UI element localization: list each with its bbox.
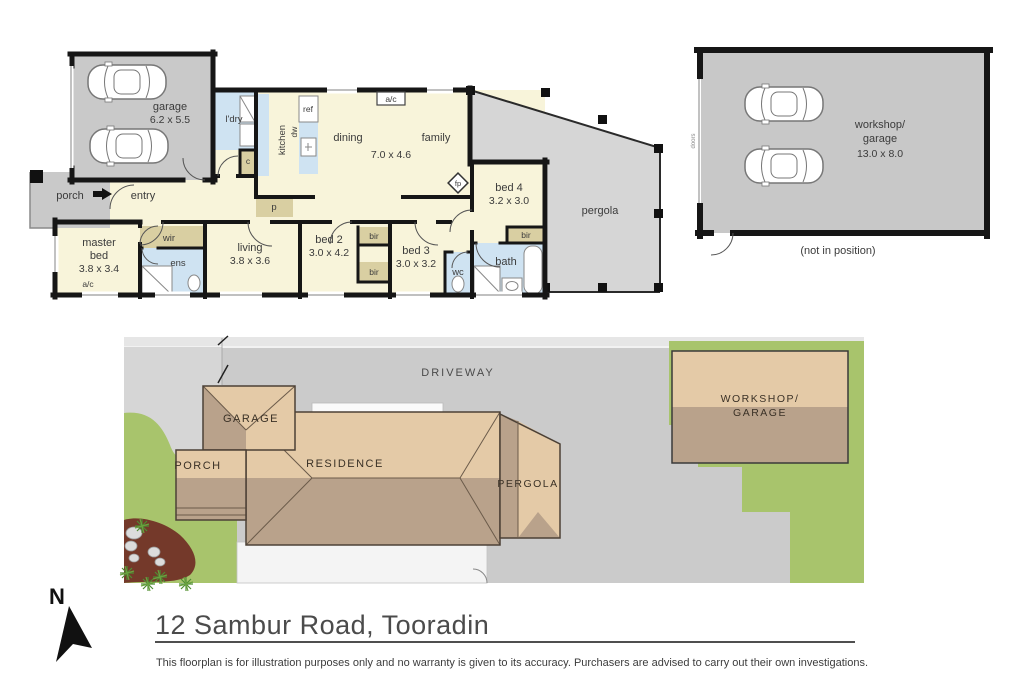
bed2-dims: 3.0 x 4.2: [309, 247, 349, 259]
siteplan-drawing: DRIVEWAY GARAGE PORCH RESIDENCE PERGOLA …: [0, 330, 1024, 592]
north-arrow-icon: [56, 606, 92, 662]
site-pergola-label: PERGOLA: [497, 478, 558, 490]
workshop-dims: 13.0 x 8.0: [857, 148, 903, 160]
fireplace-label: fp: [455, 179, 461, 188]
bed4-dims: 3.2 x 3.0: [489, 195, 529, 207]
car-icon: [745, 84, 823, 124]
bed3-dims: 3.0 x 3.2: [396, 258, 436, 270]
bir-label: bir: [369, 267, 379, 277]
car-icon: [88, 62, 166, 102]
workshop-label: workshop/: [854, 119, 906, 131]
entry-label: entry: [131, 190, 156, 202]
fridge-label: ref: [303, 104, 314, 114]
garage-label: garage: [153, 101, 187, 113]
workshop-label2: garage: [863, 133, 897, 145]
title-underline: [155, 641, 855, 643]
ens-label: ens: [170, 258, 186, 269]
driveway-label: DRIVEWAY: [421, 367, 494, 379]
car-icon: [745, 146, 823, 186]
concrete-strip: [237, 542, 487, 583]
wc-label: wc: [451, 267, 464, 278]
dishwasher-label: dw: [289, 126, 299, 138]
master-bed-label: master: [82, 237, 116, 249]
bir-label: bir: [369, 231, 379, 241]
dining-label: dining: [333, 132, 362, 144]
bed3-label: bed 3: [402, 245, 430, 257]
master-bed-dims: 3.8 x 3.4: [79, 263, 119, 275]
family-label: family: [422, 132, 451, 144]
bed4-label: bed 4: [495, 182, 523, 194]
north-label: N: [49, 584, 65, 609]
bir-label: bir: [521, 230, 531, 240]
master-bed-label2: bed: [90, 250, 108, 262]
car-icon: [90, 126, 168, 166]
ac-label: a/c: [385, 94, 397, 104]
floorplan-drawing: pergola: [0, 0, 1024, 330]
laundry-label: l'dry: [225, 114, 242, 125]
ac-label: a/c: [82, 279, 94, 289]
workshop-note: (not in position): [800, 245, 875, 257]
site-workshop-label: WORKSHOP/: [721, 393, 800, 405]
ac-unit: a/c: [377, 92, 405, 105]
pergola-label: pergola: [582, 205, 620, 217]
site-workshop-label2: GARAGE: [733, 407, 787, 419]
site-residence-label: RESIDENCE: [306, 458, 384, 470]
doors-label: doors: [691, 133, 697, 148]
workshop-building: doors workshop/ garage 13.0 x 8.0 (not i…: [691, 50, 990, 257]
bed2-label: bed 2: [315, 234, 343, 246]
site-garage-label: GARAGE: [223, 413, 279, 425]
pantry-label: p: [271, 202, 276, 213]
living-dims: 3.8 x 3.6: [230, 255, 270, 267]
site-porch-label: PORCH: [174, 460, 221, 472]
bath-label: bath: [495, 256, 516, 268]
living-label: living: [237, 242, 262, 254]
kitchen-label: kitchen: [277, 125, 288, 155]
garage-dims: 6.2 x 5.5: [150, 114, 190, 126]
floorplan-page: pergola: [0, 0, 1024, 683]
porch-label: porch: [56, 190, 84, 202]
wir-label: wir: [162, 233, 175, 244]
disclaimer-text: This floorplan is for illustration purpo…: [0, 657, 1024, 669]
family-dims: 7.0 x 4.6: [371, 149, 411, 161]
page-title: 12 Sambur Road, Tooradin: [155, 610, 489, 641]
